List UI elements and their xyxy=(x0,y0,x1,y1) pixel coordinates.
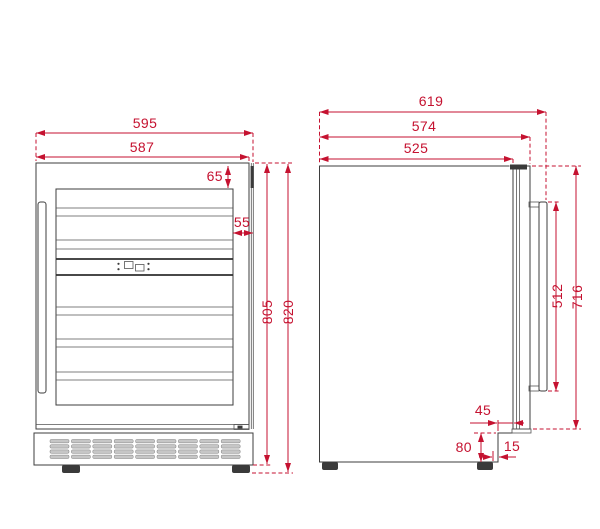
side-dimensions: 619 574 525 512 716 45 80 1 xyxy=(320,93,586,462)
front-right-foot xyxy=(232,465,250,473)
side-door-slab xyxy=(513,166,530,429)
front-door-outline xyxy=(36,163,249,429)
dim-plinth-height: 80 xyxy=(456,439,472,455)
dim-total-width: 595 xyxy=(133,115,158,131)
control-panel-icons xyxy=(117,262,149,272)
side-view xyxy=(320,165,548,471)
dim-total-height: 820 xyxy=(280,300,296,325)
dim-handle-length: 512 xyxy=(549,284,565,309)
side-front-foot xyxy=(477,462,493,470)
wine-cooler-dimension-drawing: 595 587 65 55 805 820 619 574 525 xyxy=(0,0,600,529)
zone-display-icon xyxy=(125,262,134,269)
zone-display-icon xyxy=(136,265,145,272)
side-handle xyxy=(529,202,547,391)
front-left-foot xyxy=(62,465,80,473)
dot-icon xyxy=(147,268,149,270)
side-back-foot xyxy=(322,462,338,470)
dim-top-inset: 65 xyxy=(207,168,223,184)
front-shelf-lines xyxy=(56,208,233,380)
grille-group xyxy=(221,440,240,459)
dim-right-inset: 55 xyxy=(234,214,250,230)
dim-foot-inset: 15 xyxy=(504,438,520,454)
dim-door-width: 587 xyxy=(130,139,155,155)
front-dimensions: 595 587 65 55 805 820 xyxy=(36,115,296,473)
front-glass-panel xyxy=(56,189,233,405)
grille-group xyxy=(93,440,112,459)
grille-group xyxy=(50,440,69,459)
dim-total-depth: 619 xyxy=(419,93,444,109)
technical-drawing-page: 595 587 65 55 805 820 619 574 525 xyxy=(0,0,600,529)
grille-group xyxy=(136,440,155,459)
front-plinth xyxy=(34,433,253,465)
front-control-band xyxy=(56,259,233,275)
dim-body-depth: 525 xyxy=(404,140,429,156)
handle-bar xyxy=(539,202,547,391)
dim-body-height: 805 xyxy=(259,300,275,325)
front-view xyxy=(34,163,254,473)
grille-group xyxy=(200,440,219,459)
grille-group xyxy=(157,440,176,459)
dot-icon xyxy=(147,263,149,265)
side-door-bottom-step xyxy=(512,429,531,433)
front-top-hinge-pin xyxy=(251,166,254,188)
dot-icon xyxy=(117,263,119,265)
ventilation-grille xyxy=(50,440,240,459)
dim-door-clearance: 45 xyxy=(475,402,491,418)
grille-group xyxy=(114,440,133,459)
dot-icon xyxy=(117,268,119,270)
front-handle xyxy=(38,202,46,393)
grille-group xyxy=(178,440,197,459)
dim-depth-with-door: 574 xyxy=(412,118,437,134)
side-top-hinge xyxy=(510,165,527,170)
dim-door-height: 716 xyxy=(569,285,585,310)
grille-group xyxy=(71,440,90,459)
